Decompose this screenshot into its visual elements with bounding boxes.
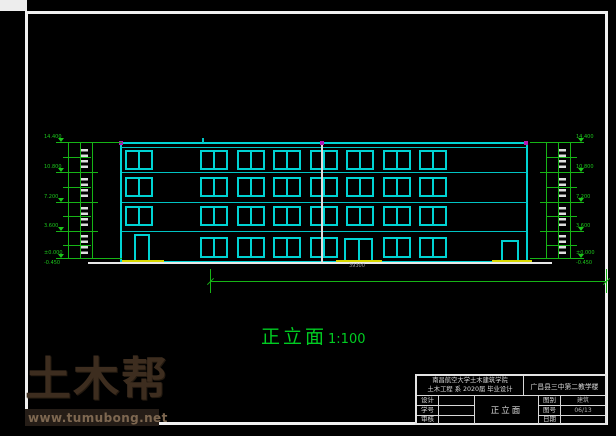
window — [310, 177, 338, 197]
window — [237, 206, 265, 226]
window — [419, 150, 447, 170]
floor-line — [122, 231, 526, 232]
window-mullion — [396, 151, 398, 169]
dim-tick — [56, 172, 98, 173]
window-mullion — [250, 151, 252, 169]
window — [273, 237, 301, 258]
watermark-url-strip: www.tumubong.net — [25, 409, 159, 426]
dim-tick — [530, 258, 584, 259]
drawing-scale-text: 1:100 — [328, 331, 365, 348]
window — [237, 150, 265, 170]
grid-point-dot — [320, 141, 324, 145]
title-block: 南昌航空大学土木建筑学院 土木工程 系 2020届 毕业设计 广昌县三中第二教学… — [415, 374, 607, 425]
dim-number-dash — [81, 207, 88, 226]
value-review — [439, 415, 475, 424]
window-mullion — [432, 178, 434, 196]
window-mullion — [396, 238, 398, 257]
window — [273, 177, 301, 197]
title-block-header: 南昌航空大学土木建筑学院 土木工程 系 2020届 毕业设计 广昌县三中第二教学… — [417, 376, 605, 396]
cad-canvas: 14.40010.8007.2003.600±0.000-0.45014.400… — [0, 0, 616, 436]
window-mullion — [286, 207, 288, 225]
drawing-name-cell: 正立面 — [475, 396, 539, 424]
bottom-dim-line — [210, 281, 606, 282]
window — [346, 150, 374, 170]
window — [310, 206, 338, 226]
window — [419, 237, 447, 258]
level-symbol — [578, 198, 584, 202]
level-label: ±0.000 — [44, 251, 70, 257]
level-symbol — [578, 227, 584, 231]
design-line: 土木工程 系 2020届 毕业设计 — [428, 386, 513, 395]
level-label: 14.400 — [44, 135, 70, 141]
watermark-url: www.tumubong.net — [25, 411, 168, 425]
value-drawing-no: 06/13 — [561, 405, 605, 414]
window-mullion — [286, 238, 288, 257]
level-label: 3.600 — [44, 224, 70, 230]
window-mullion — [213, 207, 215, 225]
level-symbol — [58, 227, 64, 231]
value-design — [439, 396, 475, 405]
drawing-title-text: 正立面 — [261, 326, 327, 348]
dim-number-dash — [559, 178, 566, 197]
window — [419, 206, 447, 226]
window-mullion — [138, 151, 140, 169]
dim-tick — [540, 172, 584, 173]
school-cell: 南昌航空大学土木建筑学院 土木工程 系 2020届 毕业设计 — [417, 376, 524, 395]
grid-axis-line — [321, 143, 323, 263]
label-review: 审核 — [417, 415, 439, 424]
dim-tick — [540, 202, 584, 203]
level-label: 7.200 — [44, 195, 70, 201]
window — [200, 237, 228, 258]
level-symbol — [578, 138, 584, 142]
school-name: 南昌航空大学土木建筑学院 — [432, 377, 508, 386]
dim-number-dash — [81, 235, 88, 254]
window-mullion — [250, 178, 252, 196]
window — [310, 150, 338, 170]
ground-line — [88, 262, 552, 264]
window — [383, 177, 411, 197]
window-mullion — [396, 178, 398, 196]
window — [346, 206, 374, 226]
window — [200, 206, 228, 226]
drawing-title: 正立面 1:100 — [261, 326, 365, 348]
dim-tick — [540, 231, 584, 232]
dim-tick — [56, 231, 98, 232]
floor-line — [122, 202, 526, 203]
level-label: 10.800 — [44, 165, 70, 171]
grid-point-dot — [524, 141, 528, 145]
window-mullion — [396, 207, 398, 225]
window — [125, 177, 153, 197]
window — [419, 177, 447, 197]
window-mullion — [432, 207, 434, 225]
label-drawing-type: 图别 — [539, 396, 561, 405]
level-symbol — [58, 198, 64, 202]
window-mullion — [286, 178, 288, 196]
window-mullion — [359, 151, 361, 169]
base-level-label: -0.450 — [44, 261, 70, 267]
label-student-id: 学号 — [417, 405, 439, 414]
grid-tick — [202, 138, 204, 143]
dim-number-dash — [81, 178, 88, 197]
base-level-label: -0.450 — [576, 261, 602, 267]
window-mullion — [359, 178, 361, 196]
label-drawing-no: 图号 — [539, 405, 561, 414]
window-mullion — [213, 238, 215, 257]
dim-number-dash — [559, 149, 566, 168]
window-mullion — [250, 207, 252, 225]
bottom-dim-text: 39300 — [349, 264, 379, 270]
dim-vline — [546, 142, 547, 259]
dim-tick — [56, 202, 98, 203]
project-name: 广昌县三中第二教学楼 — [524, 376, 605, 395]
window-mullion — [286, 151, 288, 169]
window — [383, 237, 411, 258]
window-mullion — [432, 151, 434, 169]
floor-line — [122, 172, 526, 173]
watermark-brand: 土木帮 — [25, 351, 169, 407]
dim-number-dash — [81, 149, 88, 168]
level-symbol — [58, 138, 64, 142]
label-date: 日期 — [539, 415, 561, 424]
window-mullion — [138, 178, 140, 196]
window — [383, 150, 411, 170]
value-date — [561, 415, 605, 424]
window-mullion — [138, 207, 140, 225]
level-symbol — [578, 168, 584, 172]
window — [200, 150, 228, 170]
level-symbol — [578, 254, 584, 258]
window — [383, 206, 411, 226]
dim-tick — [56, 142, 122, 143]
dim-vline — [570, 142, 571, 259]
label-design: 设计 — [417, 396, 439, 405]
watermark: 土木帮 www.tumubong.net — [25, 351, 169, 407]
door — [134, 234, 150, 262]
window-mullion — [213, 151, 215, 169]
window — [273, 206, 301, 226]
window — [125, 150, 153, 170]
window — [346, 177, 374, 197]
door — [344, 238, 373, 262]
dim-tick — [530, 142, 584, 143]
window-mullion — [213, 178, 215, 196]
title-block-body: 设计 学号 审核 正立面 图别 图号 日期 建筑 06/13 — [417, 396, 605, 424]
value-student-id — [439, 405, 475, 414]
window — [237, 237, 265, 258]
parapet-cap-line — [121, 147, 527, 148]
level-symbol — [58, 254, 64, 258]
dim-vline — [68, 142, 69, 259]
window-mullion — [359, 207, 361, 225]
window-mullion — [432, 238, 434, 257]
window — [125, 206, 153, 226]
window — [310, 237, 338, 258]
window-mullion — [250, 238, 252, 257]
dim-number-dash — [559, 207, 566, 226]
level-symbol — [58, 168, 64, 172]
dim-number-dash — [559, 235, 566, 254]
dim-tick — [56, 258, 122, 259]
dim-vline — [92, 142, 93, 259]
window — [237, 177, 265, 197]
window — [200, 177, 228, 197]
value-drawing-type: 建筑 — [561, 396, 605, 405]
window — [273, 150, 301, 170]
